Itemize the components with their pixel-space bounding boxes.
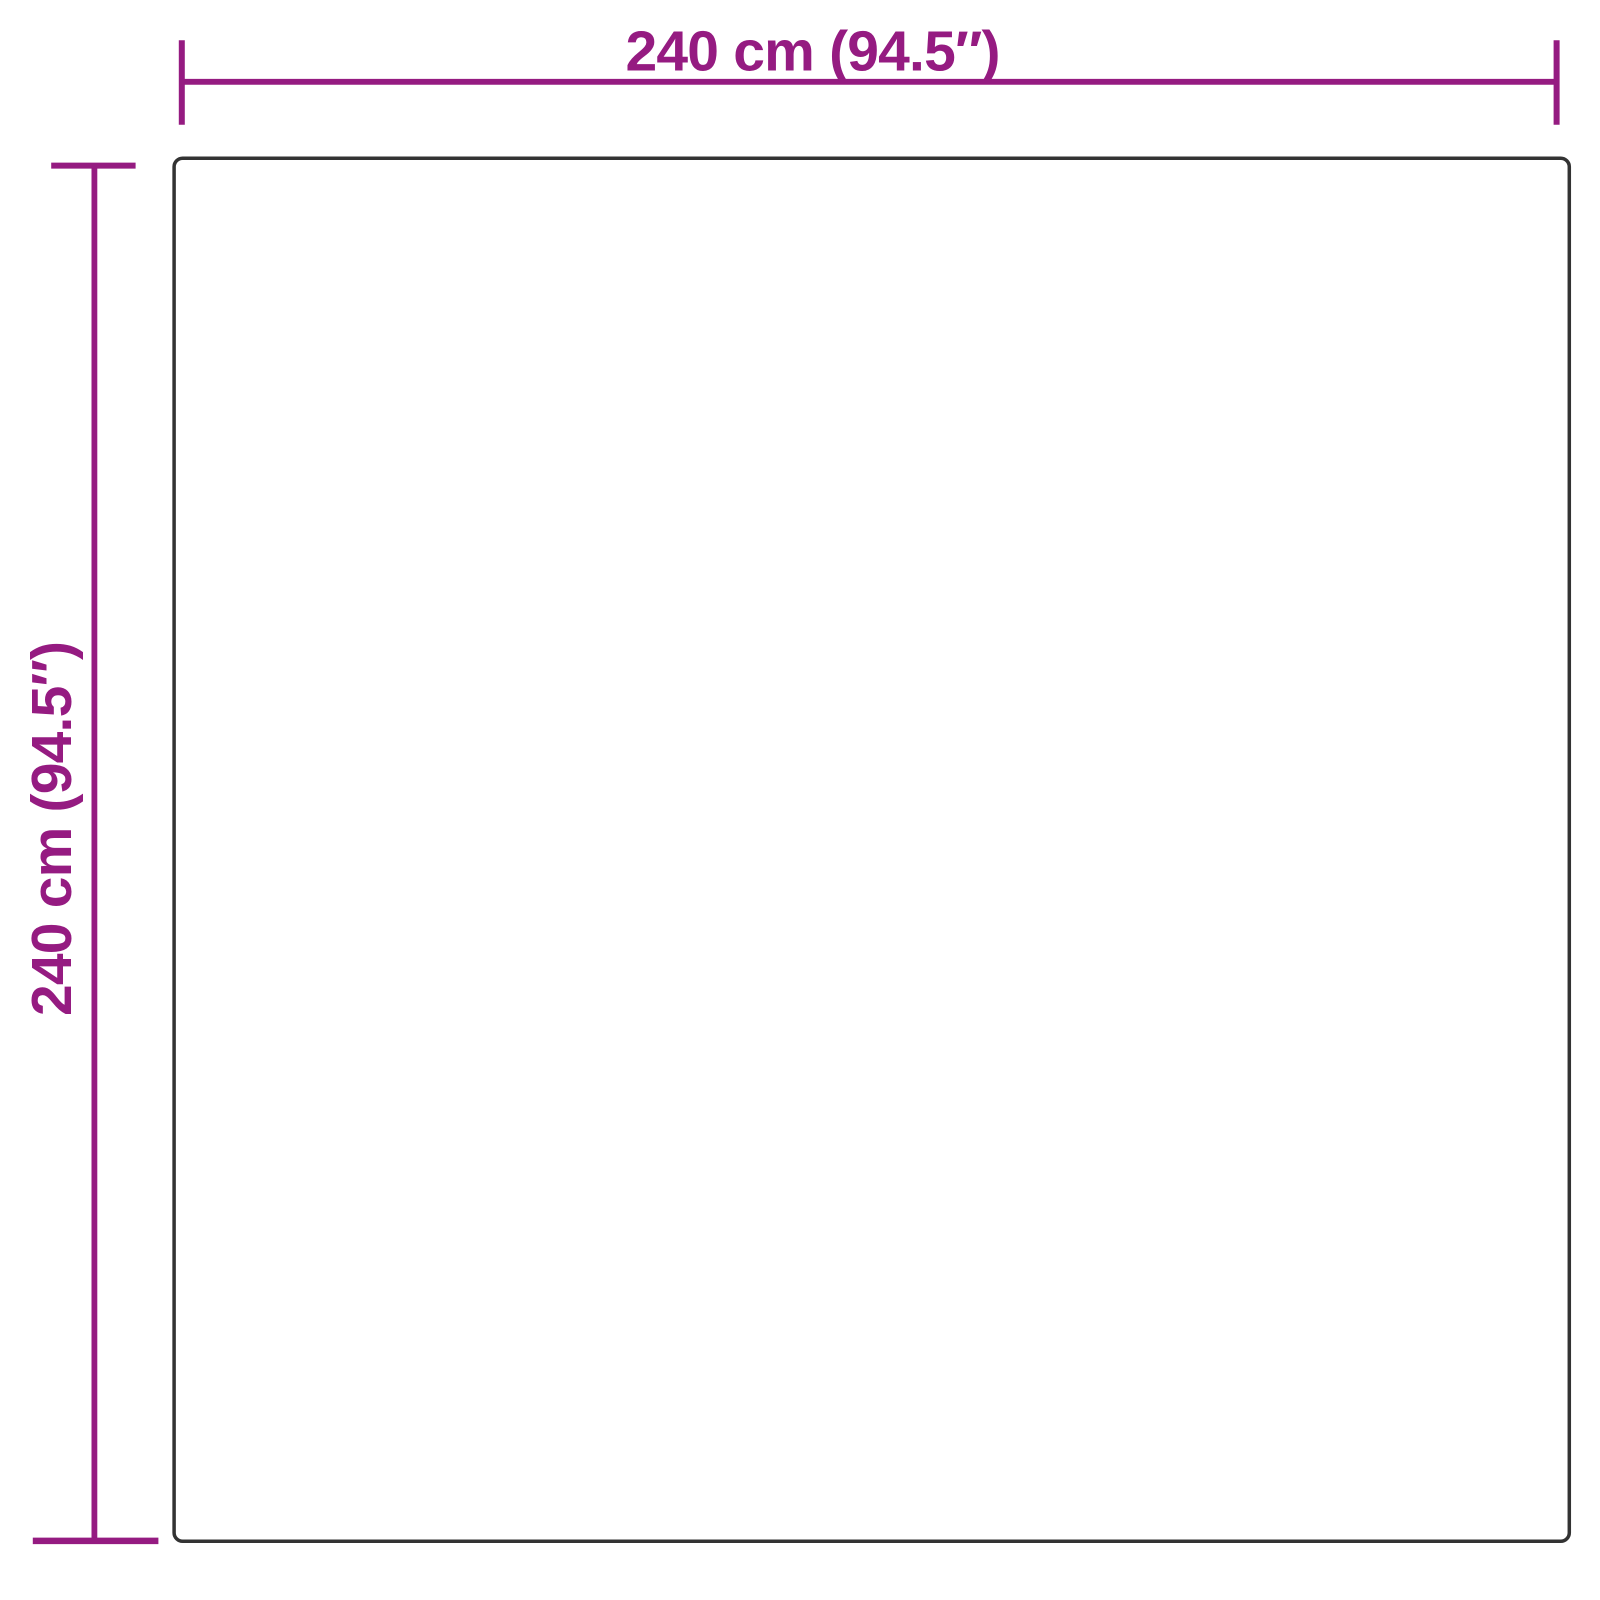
svg-text:240 cm (94.5″): 240 cm (94.5″) (20, 641, 84, 1016)
svg-text:240 cm (94.5″): 240 cm (94.5″) (626, 20, 1001, 84)
